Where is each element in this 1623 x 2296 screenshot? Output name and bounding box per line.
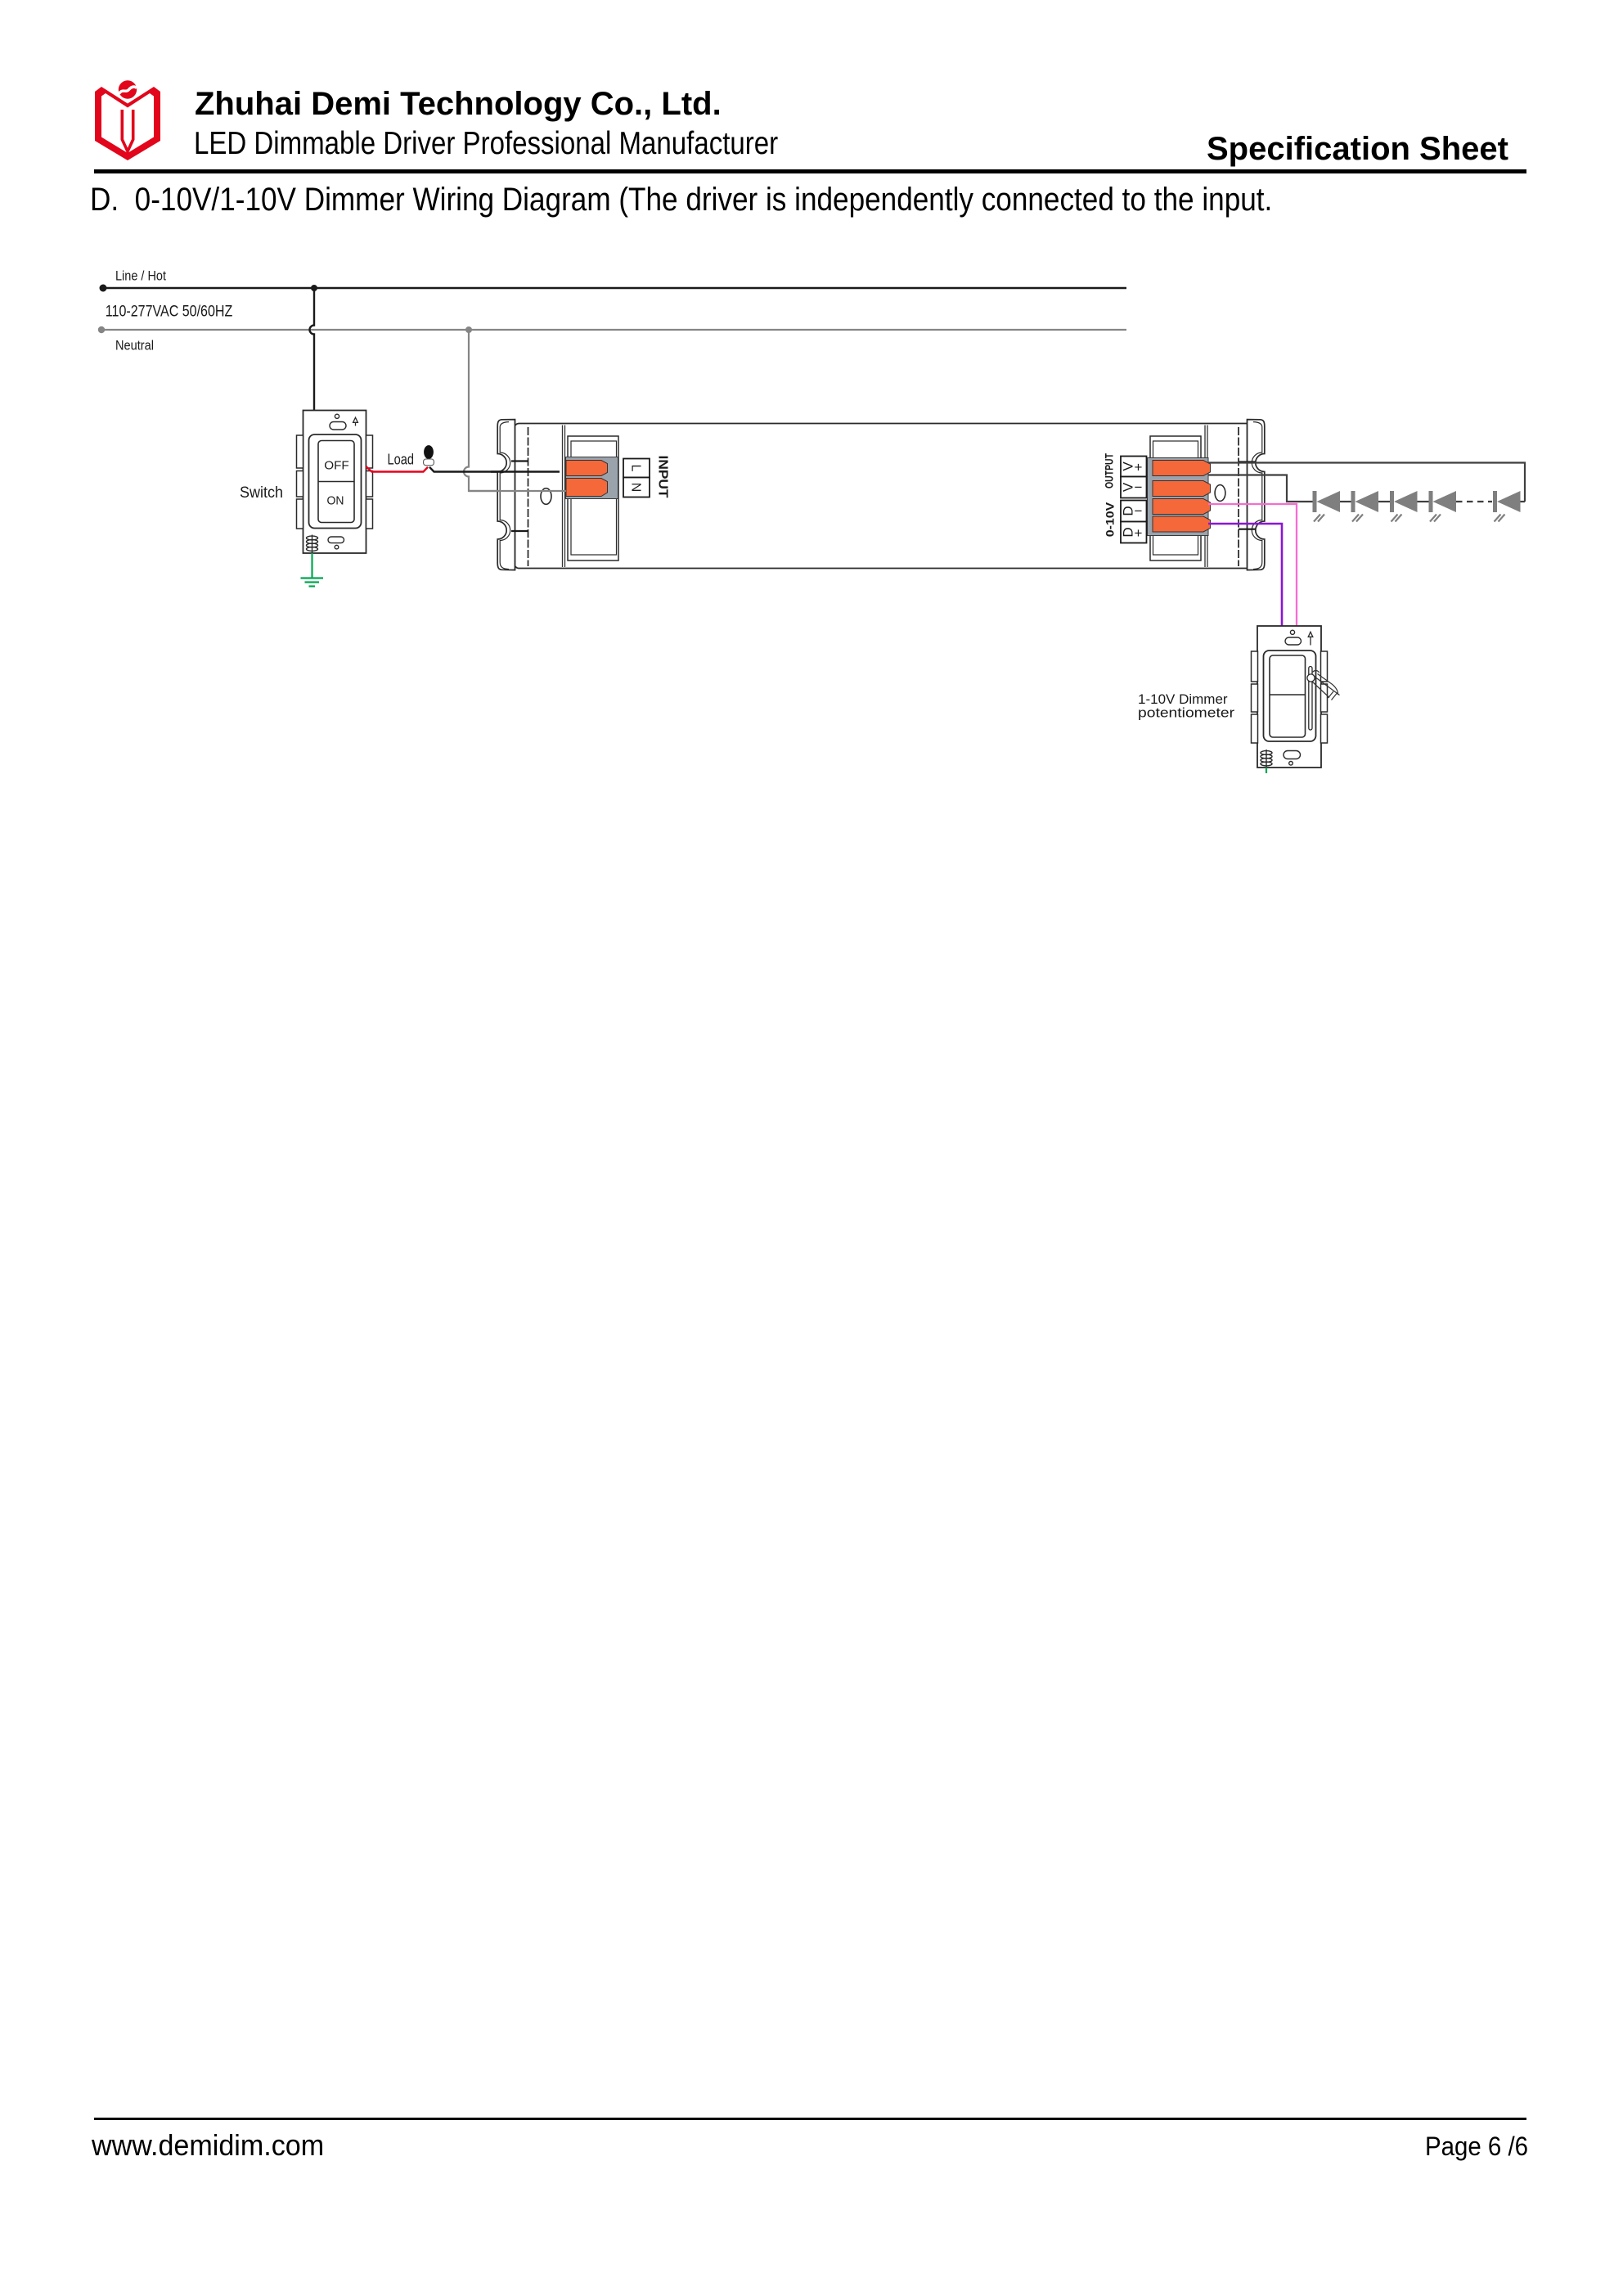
svg-text:L: L <box>629 465 643 472</box>
svg-text:−: − <box>1135 479 1143 495</box>
svg-text:Switch: Switch <box>240 484 283 502</box>
svg-text:ON: ON <box>327 495 344 508</box>
svg-text:+: + <box>1135 460 1143 475</box>
svg-text:N: N <box>629 483 643 493</box>
svg-text:+: + <box>1135 525 1143 541</box>
svg-text:potentiometer: potentiometer <box>1138 705 1234 721</box>
svg-text:OUTPUT: OUTPUT <box>1103 453 1116 488</box>
svg-text:110-277VAC 50/60HZ: 110-277VAC 50/60HZ <box>106 304 233 321</box>
svg-text:0-10V: 0-10V <box>1104 502 1117 537</box>
svg-text:INPUT: INPUT <box>656 456 670 499</box>
svg-text:OFF: OFF <box>324 460 349 473</box>
svg-text:Neutral: Neutral <box>115 338 154 353</box>
svg-text:Line / Hot: Line / Hot <box>115 268 166 284</box>
svg-text:Load: Load <box>388 451 415 467</box>
svg-text:−: − <box>1135 503 1143 519</box>
